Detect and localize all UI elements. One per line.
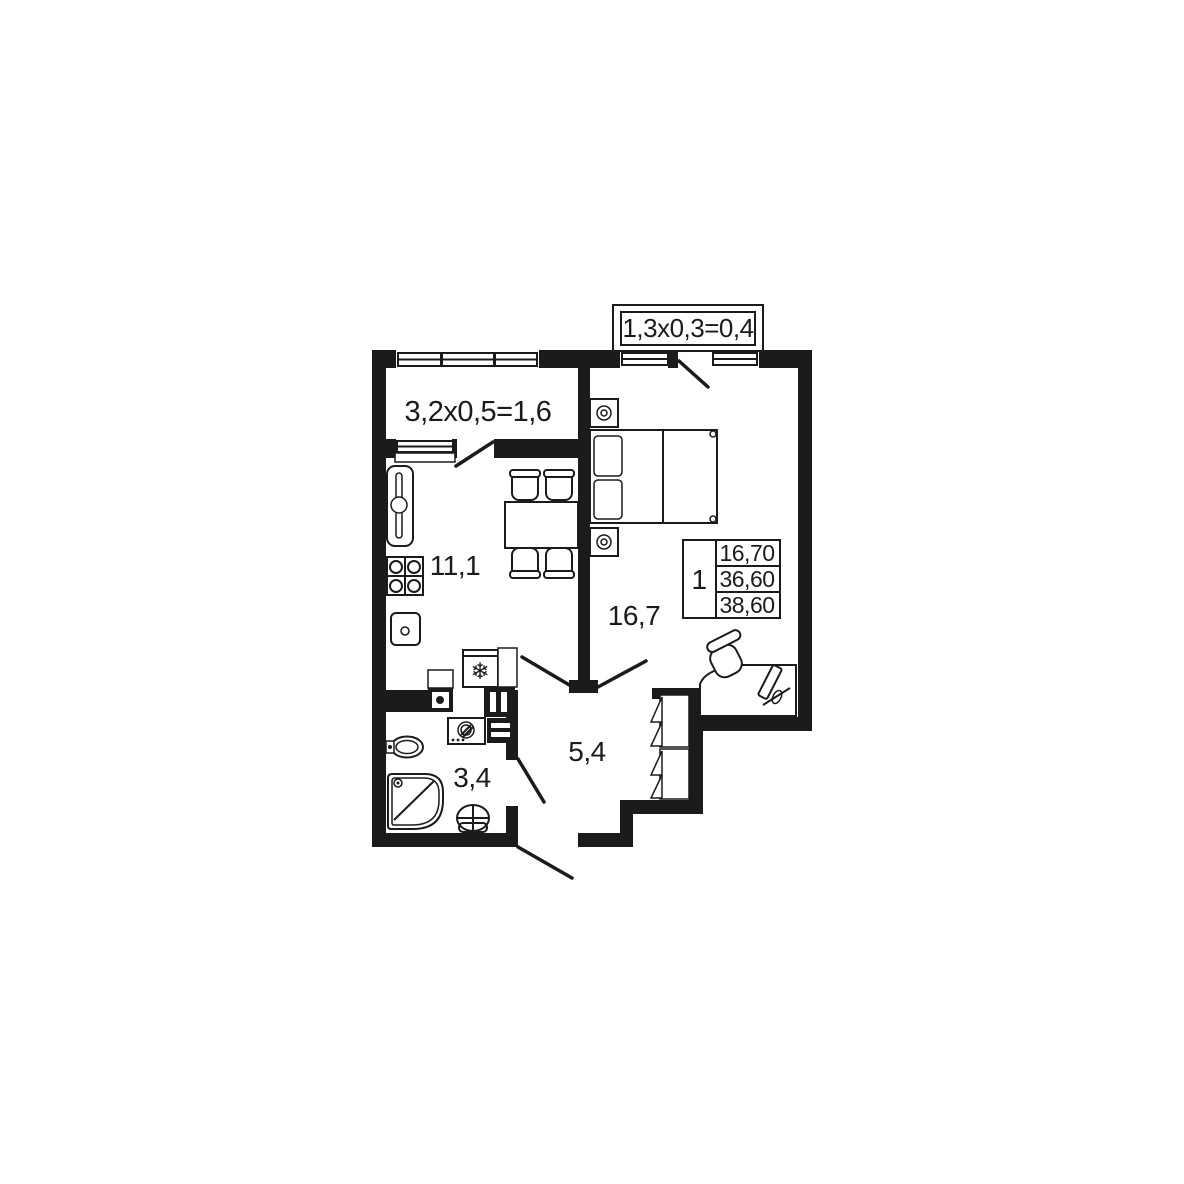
vent-block-c: [487, 718, 515, 743]
dining-table: [505, 502, 578, 548]
total-area-value: 38,60: [719, 592, 774, 618]
kitchen-area-label: 11,1: [430, 550, 480, 581]
bed-icon: [590, 430, 717, 523]
wall-bedroom-bottom: [689, 717, 812, 731]
washbasin-icon: [386, 737, 423, 758]
bedroom-area-label: 16,7: [608, 600, 661, 631]
living-area-value: 16,70: [719, 540, 774, 566]
fridge-snowflake: ❄: [470, 659, 489, 685]
chair-top-right: [544, 470, 574, 500]
wall-right: [798, 350, 812, 731]
balcony-side-dimension-label: 3,2x0,5=1,6: [405, 396, 552, 428]
hallway-area-label: 5,4: [568, 736, 605, 767]
floor-plan-page: 1,3x0,3=0,4 ❄: [0, 0, 1184, 1184]
wall-kitchen-bedroom: [578, 350, 590, 680]
stove-icon: [387, 557, 423, 595]
bedroom-door-leaf: [598, 661, 646, 687]
chair-bottom-right: [544, 548, 574, 578]
bathroom-door-leaf: [518, 759, 544, 802]
vent-cabinet: [428, 670, 453, 688]
area-without-balcony-value: 36,60: [719, 566, 774, 592]
kitchen-sink-icon: [391, 613, 420, 645]
nightstand-bottom: [590, 528, 618, 556]
wall-kitchen-bath: [386, 690, 428, 712]
info-table: 1 16,70 36,60 38,60: [683, 540, 780, 618]
kitchen: ❄: [387, 466, 578, 688]
fridge-icon: ❄: [463, 650, 498, 687]
vent-block-b: [484, 687, 515, 717]
bedroom-window-left: [622, 353, 668, 365]
nightstand-top: [590, 399, 618, 427]
wall-door-stub: [569, 680, 598, 693]
bedroom-window-right: [713, 353, 757, 365]
toilet-icon: [457, 805, 489, 832]
wardrobe-icon: [651, 695, 689, 799]
washing-machine-icon: [448, 718, 485, 744]
kitchen-door-leaf: [522, 657, 571, 686]
chair-bottom-left: [510, 548, 540, 578]
vent-block-a: [428, 688, 453, 712]
kitchen-window: [395, 441, 455, 462]
chair-top-left: [510, 470, 540, 500]
bathroom-area-label: 3,4: [453, 762, 490, 793]
balcony-top-box: 1,3x0,3=0,4: [613, 305, 763, 351]
wall-bath-bottom: [372, 833, 518, 847]
wall-left: [372, 350, 386, 847]
kitchen-counter-cell: [498, 648, 517, 687]
entrance-door-leaf: [518, 847, 572, 878]
floor-plan-svg: 1,3x0,3=0,4 ❄: [0, 0, 1184, 1184]
kitchen-tall-cabinet: [387, 466, 413, 546]
room-count-value: 1: [691, 564, 706, 595]
desk-icon: [700, 665, 796, 716]
balcony-top-dimension-label: 1,3x0,3=0,4: [622, 313, 753, 343]
post-bedroom-door: [668, 350, 678, 368]
balcony-window: [398, 353, 537, 366]
shower-icon: [388, 774, 443, 829]
